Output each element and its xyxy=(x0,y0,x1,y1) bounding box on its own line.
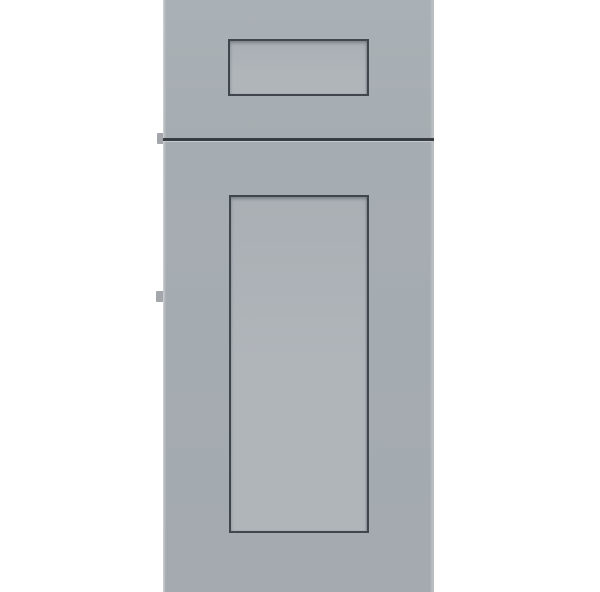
door-right-edge-highlight xyxy=(430,141,434,592)
product-photo-stage xyxy=(0,0,600,592)
drawer-front xyxy=(163,0,434,141)
drawer-recessed-panel xyxy=(228,39,369,96)
reveal-gap-highlight xyxy=(163,141,434,142)
drawer-left-edge-highlight xyxy=(163,0,166,138)
cabinet-door-sample xyxy=(163,0,434,592)
door-left-edge-highlight xyxy=(163,141,166,592)
door-recessed-panel xyxy=(229,195,369,533)
cabinet-door xyxy=(163,141,434,592)
drawer-right-edge-highlight xyxy=(430,0,434,138)
